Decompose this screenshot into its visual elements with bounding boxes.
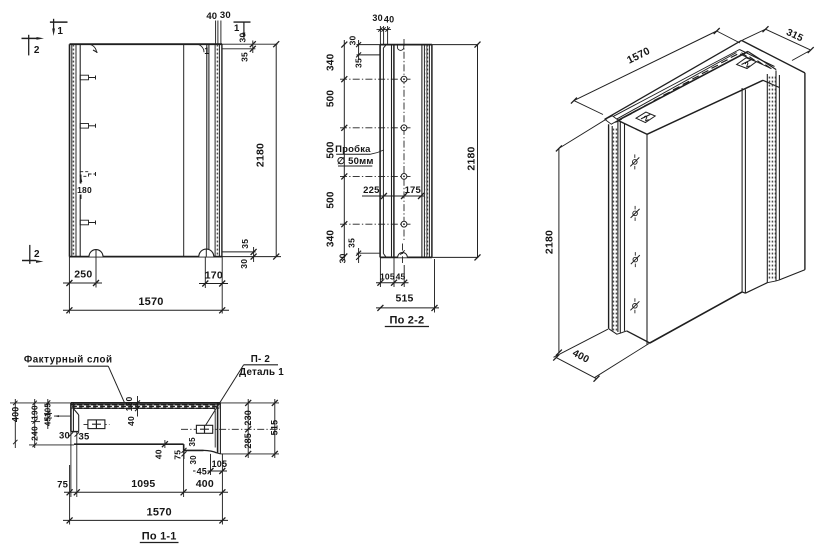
svg-text:515: 515: [395, 293, 413, 305]
svg-text:30: 30: [59, 431, 70, 442]
svg-text:1: 1: [204, 46, 209, 56]
svg-text:400: 400: [10, 406, 20, 422]
svg-text:35: 35: [240, 239, 250, 249]
svg-text:2: 2: [34, 45, 40, 56]
svg-text:170: 170: [205, 269, 223, 281]
svg-text:30: 30: [239, 259, 249, 269]
svg-text:75: 75: [173, 450, 183, 460]
svg-text:340: 340: [326, 230, 337, 248]
svg-text:По 2-2: По 2-2: [390, 315, 425, 327]
svg-text:175: 175: [405, 185, 422, 196]
svg-text:35: 35: [347, 238, 357, 248]
svg-text:Фактурный слой: Фактурный слой: [24, 355, 113, 366]
svg-text:225: 225: [363, 185, 380, 196]
svg-text:400: 400: [570, 348, 591, 366]
svg-text:240: 240: [30, 426, 40, 441]
svg-text:40: 40: [206, 11, 217, 22]
svg-text:Пробка: Пробка: [335, 144, 371, 155]
svg-text:285: 285: [243, 433, 253, 449]
svg-text:30: 30: [238, 33, 248, 43]
svg-text:2180: 2180: [255, 143, 267, 167]
svg-text:П- 2: П- 2: [251, 354, 271, 365]
svg-text:∅ 50мм: ∅ 50мм: [337, 156, 374, 167]
svg-text:2: 2: [34, 249, 40, 260]
svg-text:30: 30: [189, 455, 198, 465]
svg-text:45: 45: [197, 467, 207, 477]
svg-text:1: 1: [234, 23, 240, 34]
svg-text:190: 190: [30, 405, 40, 420]
svg-text:250: 250: [74, 268, 92, 280]
svg-text:35: 35: [354, 58, 364, 68]
svg-text:30: 30: [372, 13, 382, 23]
svg-text:1570: 1570: [625, 45, 652, 67]
svg-text:30: 30: [220, 10, 231, 21]
svg-text:35: 35: [239, 52, 249, 62]
svg-text:45: 45: [396, 272, 406, 282]
svg-text:40: 40: [384, 15, 394, 25]
svg-text:1: 1: [57, 26, 63, 37]
svg-text:180: 180: [77, 185, 92, 195]
svg-text:500: 500: [326, 191, 337, 209]
svg-text:105: 105: [380, 272, 395, 282]
svg-text:500: 500: [326, 90, 337, 108]
svg-text:75: 75: [57, 479, 68, 490]
svg-text:30: 30: [347, 36, 357, 46]
svg-text:340: 340: [326, 53, 337, 71]
svg-text:35: 35: [79, 432, 90, 443]
svg-text:35: 35: [188, 437, 197, 447]
svg-text:40: 40: [126, 416, 136, 426]
svg-text:130: 130: [124, 397, 134, 412]
svg-text:515: 515: [270, 420, 280, 436]
svg-text:Деталь 1: Деталь 1: [239, 367, 284, 378]
svg-text:40: 40: [154, 449, 164, 459]
svg-text:1095: 1095: [131, 478, 155, 490]
svg-text:315: 315: [784, 27, 805, 44]
svg-text:1570: 1570: [147, 506, 172, 518]
svg-text:105: 105: [212, 459, 228, 469]
svg-text:30: 30: [337, 253, 347, 263]
svg-text:По 1-1: По 1-1: [142, 531, 177, 543]
svg-text:2180: 2180: [544, 230, 556, 254]
svg-text:45: 45: [44, 417, 53, 427]
svg-text:230: 230: [243, 410, 253, 426]
svg-text:105: 105: [44, 403, 53, 417]
svg-text:1570: 1570: [138, 296, 163, 308]
svg-text:400: 400: [196, 478, 214, 490]
svg-text:2180: 2180: [466, 146, 478, 170]
